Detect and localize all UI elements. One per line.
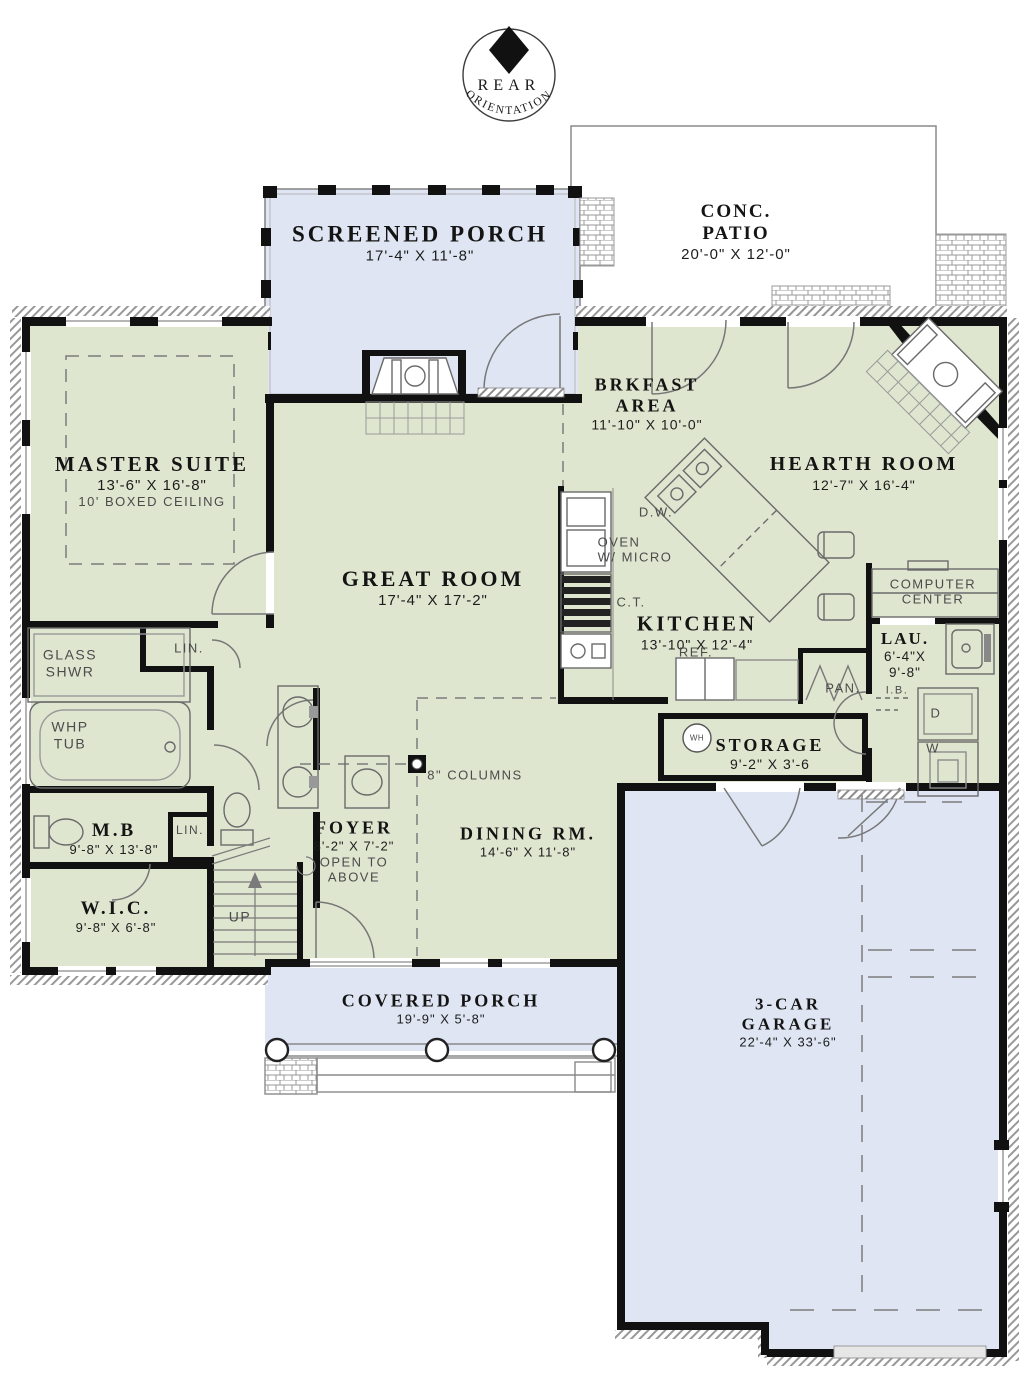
dryer-label: D: [931, 705, 942, 720]
linen2-label: LIN.: [176, 823, 204, 837]
cooktop-label: C.T.: [616, 594, 645, 609]
garage-door-step: [838, 790, 904, 799]
columns-label: 8" COLUMNS: [427, 767, 522, 782]
foyer-column: [408, 755, 426, 773]
dining-label: DINING RM. 14'-6" X 11'-8": [460, 824, 596, 861]
compass-rear-label: REAR: [478, 77, 541, 94]
whirlpool-tub-label: WHP TUB: [51, 718, 88, 751]
wic-label: W.I.C. 9'-8" X 6'-8": [76, 898, 157, 936]
foyer-label: FOYER 8'-2" X 7'-2" OPEN TO ABOVE: [314, 817, 395, 884]
great-room-label: GREAT ROOM 17'-4" X 17'-2": [342, 566, 525, 610]
master-suite-label: MASTER SUITE 13'-6" X 16'-8" 10' BOXED C…: [55, 452, 249, 510]
up-label: UP: [229, 909, 251, 926]
garage-label: 3-CAR GARAGE 22'-4" X 33'-6": [739, 994, 836, 1049]
garage-fill: [621, 789, 1003, 1349]
covered-porch-label: COVERED PORCH 19'-9" X 5'-8": [342, 991, 541, 1028]
glass-shower-label: GLASS SHWR: [43, 646, 97, 679]
ironing-board-label: I.B.: [886, 685, 909, 698]
laundry-label: LAU. 6'-4"X 9'-8": [881, 629, 929, 681]
hearth-room-label: HEARTH ROOM 12'-7" X 16'-4": [770, 453, 958, 493]
conc-patio-label: CONC. PATIO 20'-0" X 12'-0": [681, 201, 791, 264]
floorplan-drawing: REAR ORIENTATION: [0, 0, 1024, 1392]
computer-center-label: COMPUTER CENTER: [890, 577, 976, 608]
linen1-label: LIN.: [174, 640, 204, 655]
fridge-label: REF.: [679, 644, 713, 659]
screened-porch-label: SCREENED PORCH 17'-4" X 11'-8": [292, 221, 548, 266]
washer-label: W: [926, 740, 940, 755]
dishwasher-label: D.W.: [639, 504, 673, 519]
master-bath-label: M.B 9'-8" X 13'-8": [70, 820, 159, 858]
porch-door-threshold: [478, 388, 564, 397]
storage-label: STORAGE 9'-2" X 3'-6: [716, 735, 825, 773]
brkfast-area-label: BRKFAST AREA 11'-10" X 10'-0": [591, 375, 702, 434]
oven-label: OVEN W/ MICRO: [598, 535, 673, 566]
garage-door-opening: [834, 1346, 986, 1358]
pantry-label: PAN.: [825, 680, 860, 695]
floor-plan: REAR ORIENTATION: [0, 0, 1024, 1392]
compass-rose: REAR ORIENTATION: [462, 26, 556, 121]
water-heater-label: WH: [690, 733, 704, 742]
